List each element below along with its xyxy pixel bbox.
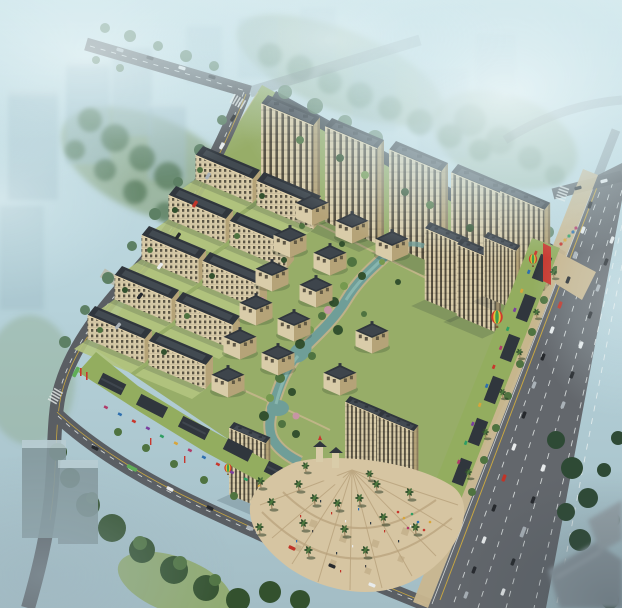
aerial-rendering — [0, 0, 622, 608]
rendering-canvas — [0, 0, 622, 608]
entry-flag-pole — [80, 368, 82, 376]
